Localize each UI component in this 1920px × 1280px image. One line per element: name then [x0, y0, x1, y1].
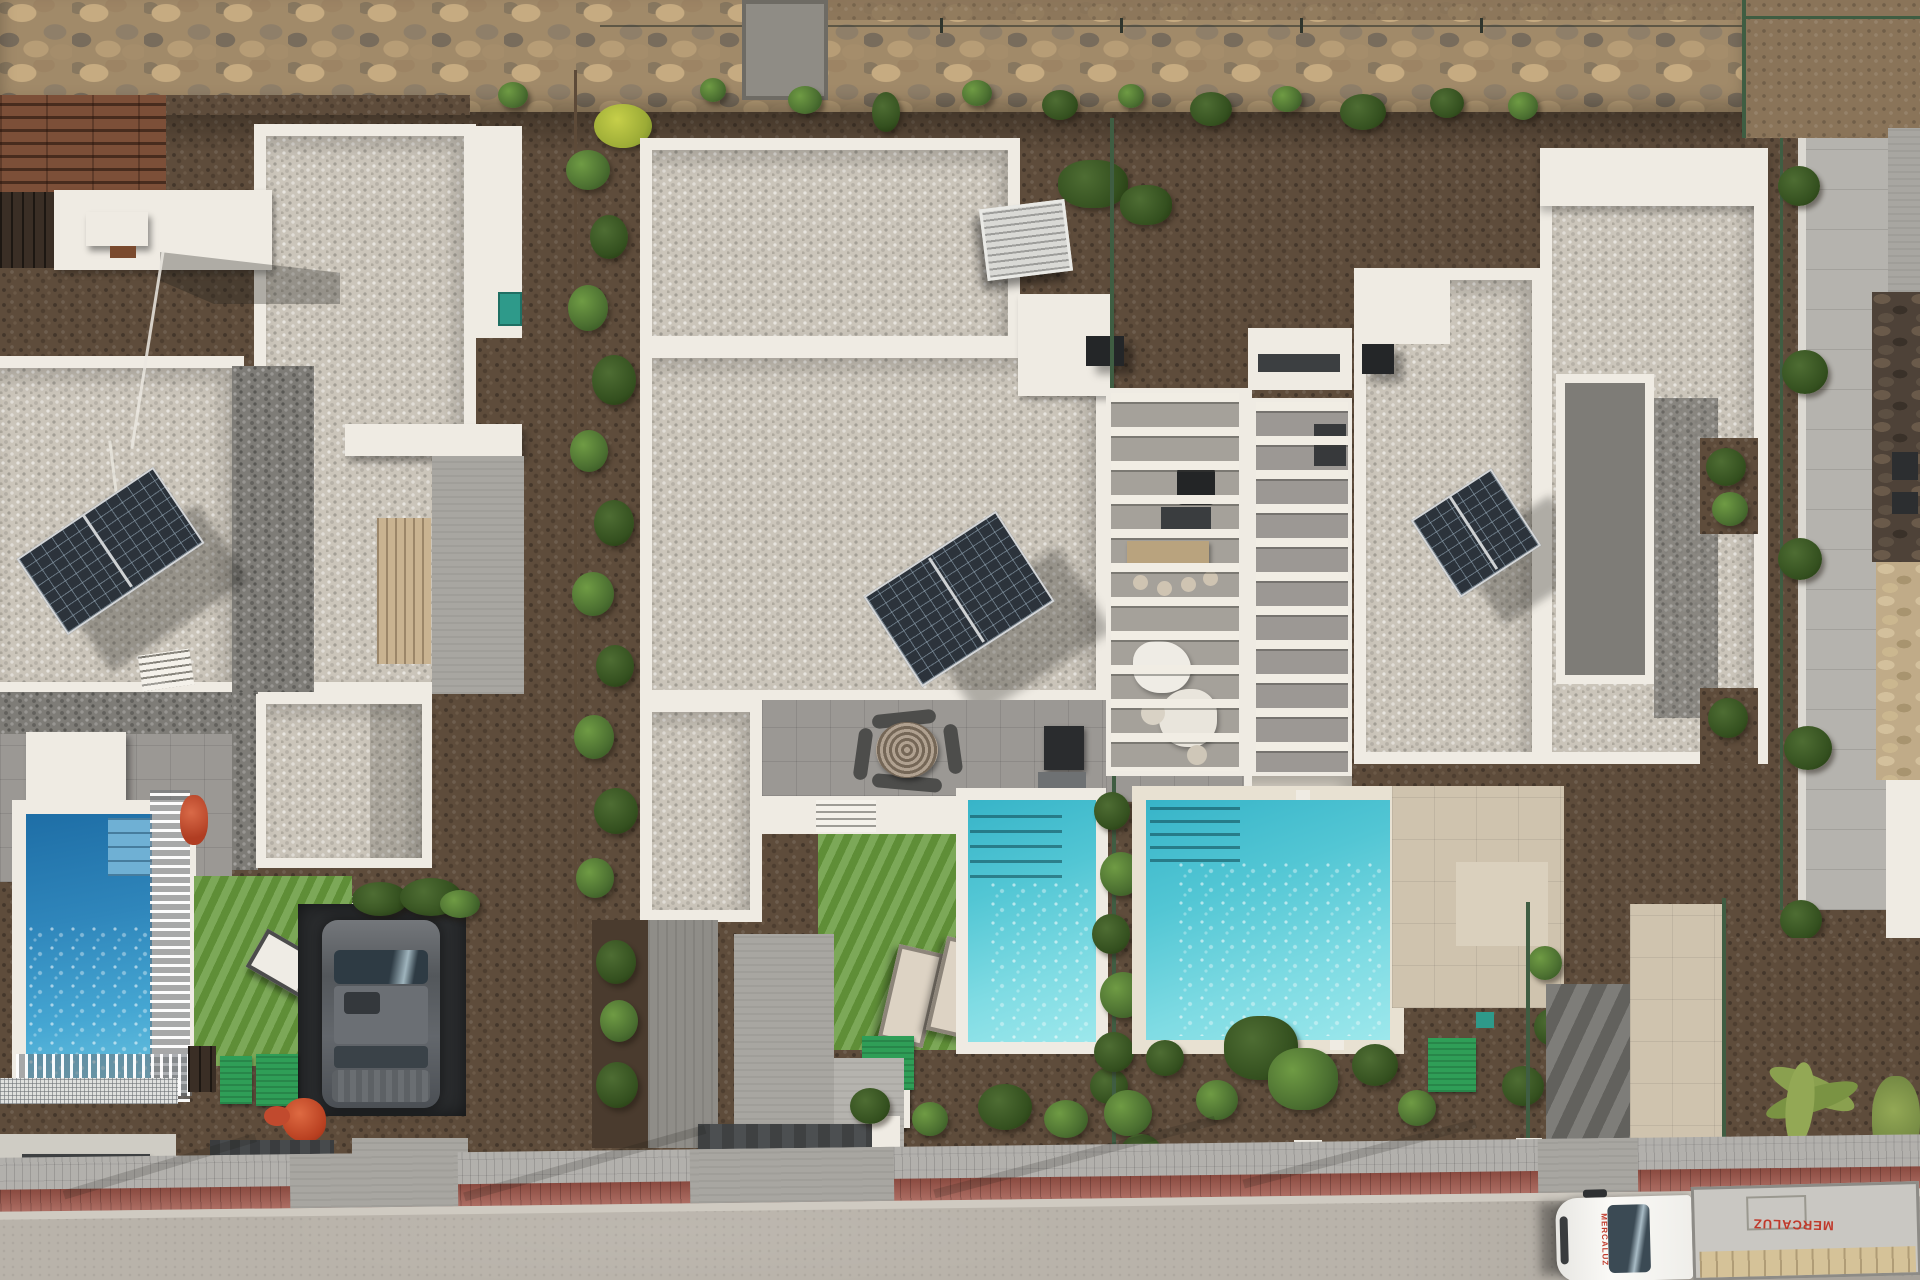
pergola-left: [1106, 388, 1244, 776]
aerial-photo-scene: MERCALUZ MERCALUZ MERCALUZ: [0, 0, 1920, 1280]
garden-bush: [1044, 1100, 1088, 1138]
garden-bush: [978, 1084, 1032, 1130]
vine-plant: [1042, 90, 1078, 120]
wall-top-path: [790, 0, 1745, 20]
car-sunroof: [344, 992, 380, 1014]
hedge-bush: [594, 500, 634, 546]
truck-windshield: [1607, 1204, 1651, 1273]
pergola-beams: [1111, 393, 1239, 771]
garage-roof-shadow: [370, 704, 422, 858]
utility-door-teal: [498, 292, 522, 326]
street-tree: [1782, 350, 1828, 394]
fence-bush: [1094, 792, 1130, 830]
ac-louver-enclosure: [979, 199, 1073, 281]
vine-plant: [788, 86, 822, 114]
wall-vine: [596, 940, 636, 984]
corner-fence-icon: [1742, 0, 1746, 138]
carport-greenery: [440, 890, 480, 918]
public-walkway-edge: [1798, 138, 1806, 910]
fence-bush: [1094, 1032, 1134, 1072]
ac-unit: [86, 212, 148, 246]
garden-bush: [1146, 1040, 1184, 1076]
car-windshield: [334, 950, 428, 984]
street-tree: [1784, 726, 1832, 770]
driveway-crossing: [690, 1147, 895, 1203]
hedge-bush: [568, 285, 608, 331]
gravel-path-dark: [0, 692, 256, 736]
ac-vent-slot: [110, 246, 136, 258]
walkway-fence: [1780, 138, 1783, 910]
street-tree: [1780, 900, 1822, 940]
planter-bush: [1712, 492, 1748, 526]
pool2-step-bars: [970, 804, 1062, 878]
skimmer-lid: [1296, 790, 1310, 800]
wall-gate-opening: [742, 0, 828, 100]
villa3-roof-box: [1556, 374, 1654, 684]
neighbour-paving: [1888, 128, 1920, 292]
hedge-bush: [566, 150, 610, 190]
villa1-bridge-wall: [345, 424, 522, 456]
chimney: [1086, 336, 1124, 366]
patio-steps: [816, 800, 876, 832]
boundary-fence-green: [1526, 902, 1530, 1164]
truck-roof-logo: MERCALUZ: [1753, 1216, 1834, 1233]
vine-plant: [1430, 88, 1464, 118]
terrace-light-tile: [1456, 862, 1548, 946]
hedge-bush: [590, 215, 628, 259]
vine-plant: [700, 78, 726, 102]
vine-cluster: [1120, 185, 1172, 225]
wing-window: [1258, 354, 1340, 372]
truck-curtain-side: [1700, 1246, 1917, 1278]
outdoor-stove: [1044, 726, 1084, 770]
pergola-right: [1252, 398, 1352, 776]
water-sparkle: [1176, 860, 1386, 1036]
rooster-statue: [264, 1092, 328, 1144]
corner-fence-icon: [1745, 16, 1920, 19]
pool1-steps: [108, 818, 152, 876]
vine-plant: [1190, 92, 1232, 126]
pergola-beams: [1256, 402, 1348, 772]
rooster-head: [264, 1106, 290, 1126]
wood-deck: [0, 192, 54, 268]
planter-bush: [1706, 448, 1746, 486]
villa1-side-path: [432, 456, 524, 694]
hedge-bush: [570, 430, 608, 472]
boundary-fence-green: [1110, 118, 1114, 388]
pool2-water: [968, 800, 1096, 1042]
villa3-walkway: [1630, 904, 1722, 1168]
door-mat: [188, 1046, 216, 1092]
garden-bush: [1502, 1066, 1544, 1106]
vine-plant: [498, 82, 528, 108]
hedge-bush: [574, 715, 614, 759]
garden-bush: [1398, 1090, 1436, 1126]
fence-post-icon: [1300, 18, 1303, 33]
truck-cab-logo: MERCALUZ: [1599, 1213, 1609, 1266]
utility-lid-teal: [1476, 1012, 1494, 1028]
vine-plant: [1508, 92, 1538, 120]
vine-plant: [1340, 94, 1386, 130]
neighbour-window: [1892, 492, 1918, 514]
fence-bush: [1104, 1090, 1152, 1136]
fence-post-icon: [940, 18, 943, 33]
vine-plant: [872, 92, 900, 132]
wall-vine: [596, 1062, 638, 1108]
car-trunk: [332, 1070, 430, 1102]
planter-bush: [1708, 698, 1748, 738]
hedge-bush: [594, 788, 638, 834]
villa1-wood-facade: [377, 518, 431, 664]
garden-bush: [1528, 946, 1562, 980]
villa2-top-roof: [652, 150, 1008, 336]
chimney: [1362, 344, 1394, 374]
villa3-corner-facade: [1354, 268, 1450, 344]
skimmer-lid: [1330, 1040, 1344, 1050]
fence-post-icon: [1480, 18, 1483, 33]
neighbour-stone-wall-beige: [1876, 562, 1920, 780]
hedge-bush: [576, 858, 614, 898]
hedge-bush: [596, 645, 634, 687]
truck-grille: [1560, 1216, 1569, 1264]
truck-mirror-icon: [1583, 1189, 1607, 1198]
pool3-step-bars: [1150, 804, 1240, 862]
grass-mat: [220, 1056, 252, 1104]
car-rear-window: [334, 1046, 428, 1068]
pool3-water: [1146, 800, 1390, 1040]
round-braided-table: [876, 722, 938, 778]
street-tree: [1778, 538, 1822, 580]
villa2-driveway: [734, 934, 834, 1148]
water-sparkle: [988, 880, 1096, 1042]
garden-bush: [1352, 1044, 1398, 1086]
pool1-grating-deck: [0, 1078, 178, 1104]
neighbour-white-wall: [1886, 780, 1920, 960]
street-tree: [1778, 166, 1820, 206]
villa2-leg-roof: [652, 712, 750, 910]
vine-cluster: [1058, 160, 1128, 208]
neighbour-stone-wall-dark: [1872, 292, 1920, 562]
truck-cab: MERCALUZ: [1555, 1195, 1693, 1280]
neighbour-window: [1892, 452, 1918, 480]
garden-bush: [850, 1088, 890, 1124]
vine-plant: [962, 80, 992, 106]
villa3-top-facade: [1540, 148, 1768, 206]
villa1-terrace-wall: [26, 732, 126, 810]
hedge-bush: [592, 355, 636, 405]
vine-plant: [1272, 86, 1302, 112]
hedge-bush: [572, 572, 614, 616]
garden-bush: [912, 1102, 948, 1136]
vine-plant: [1118, 84, 1144, 108]
truck-box: MERCALUZ MERCALUZ: [1691, 1181, 1920, 1280]
fence-bush: [1092, 914, 1130, 954]
car: [322, 920, 440, 1108]
driveway-crossing: [290, 1152, 459, 1208]
villa2-boundary-wall: [648, 920, 718, 1148]
garden-bush: [1196, 1080, 1238, 1120]
garden-bush-cluster: [1268, 1048, 1338, 1110]
driveway-crossing: [1538, 1138, 1639, 1193]
wall-vine: [600, 1000, 638, 1042]
outdoor-stairs: [138, 649, 195, 692]
wooden-pallets: [0, 95, 166, 197]
truck: MERCALUZ MERCALUZ MERCALUZ: [1539, 1179, 1920, 1280]
fence-post-icon: [1120, 18, 1123, 33]
boundary-fence: [574, 70, 577, 930]
neighbour-top-lot: [1745, 0, 1920, 138]
gravel-path-dark: [232, 692, 258, 870]
pergola-divider-wall: [1244, 388, 1252, 776]
red-towel: [180, 795, 208, 845]
grass-mat: [1428, 1038, 1476, 1092]
villa1-roof-shadow-strip: [232, 366, 314, 692]
